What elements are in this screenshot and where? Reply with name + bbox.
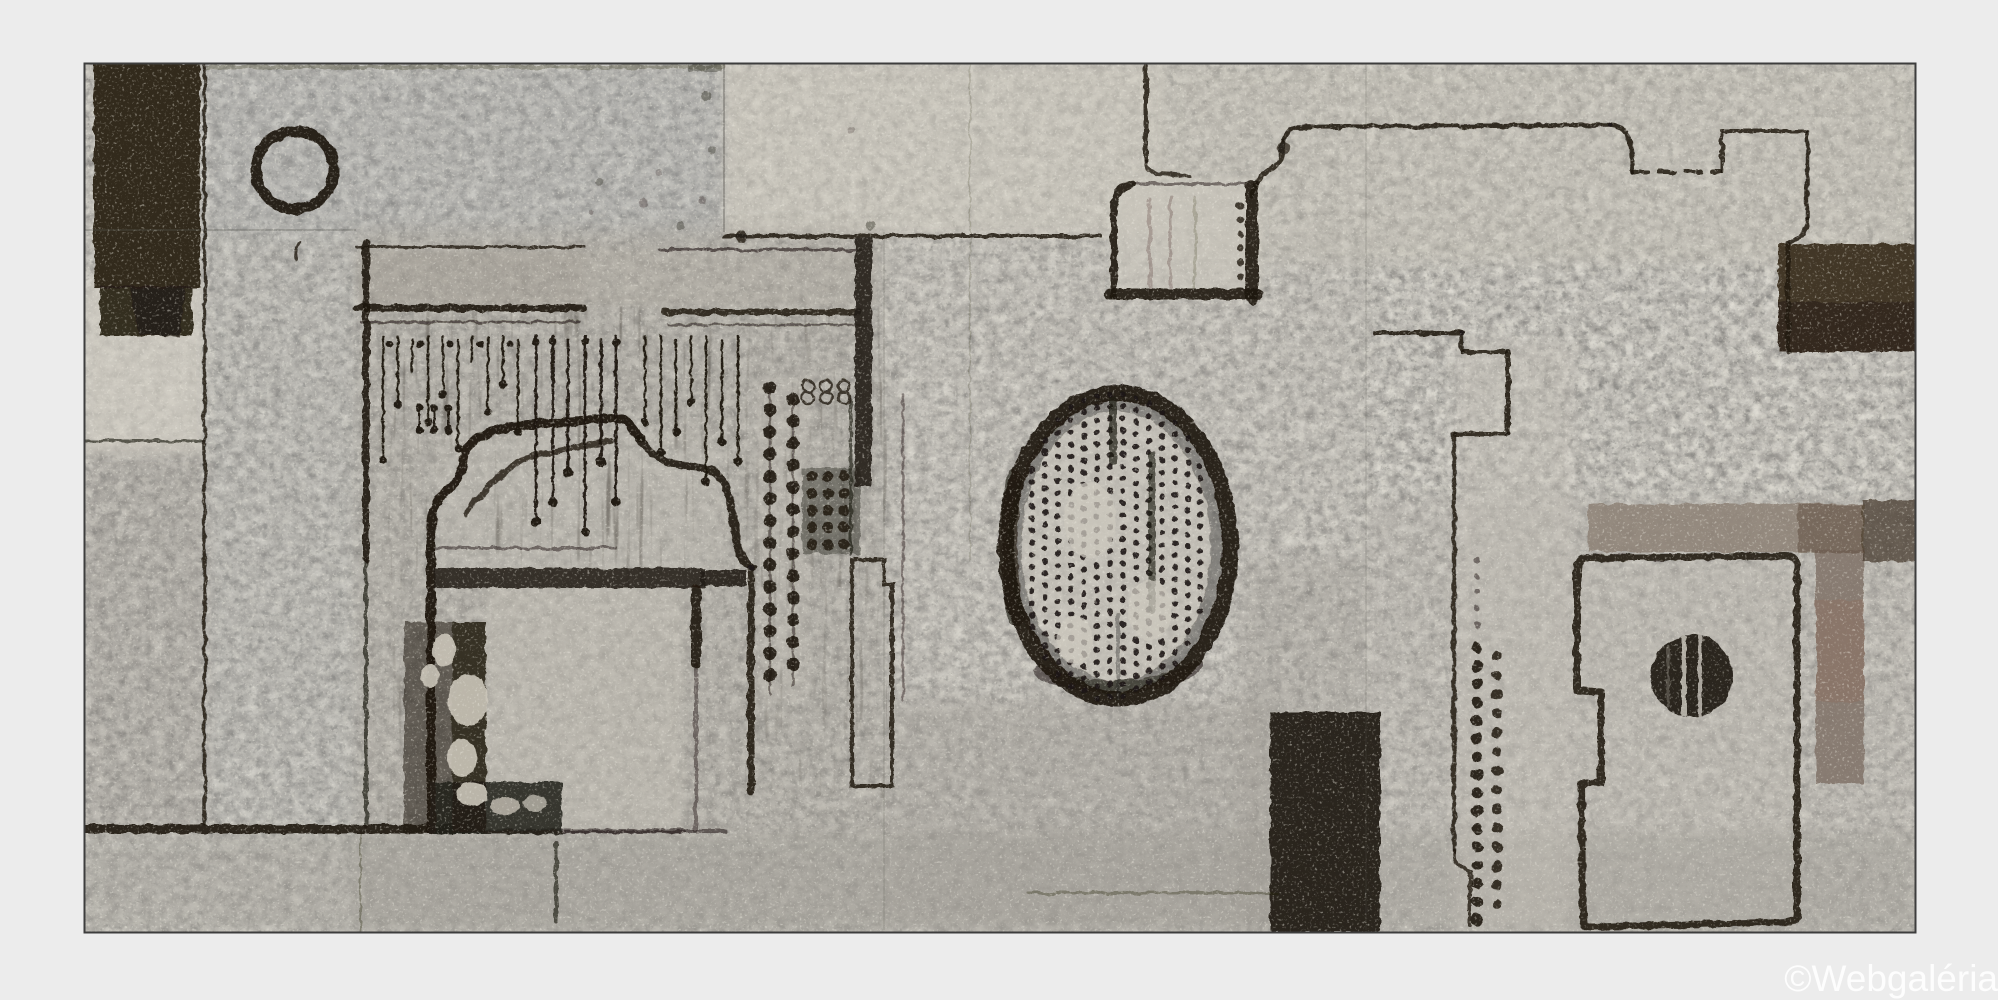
svg-text:©Webgaléria: ©Webgaléria: [1784, 958, 1998, 999]
